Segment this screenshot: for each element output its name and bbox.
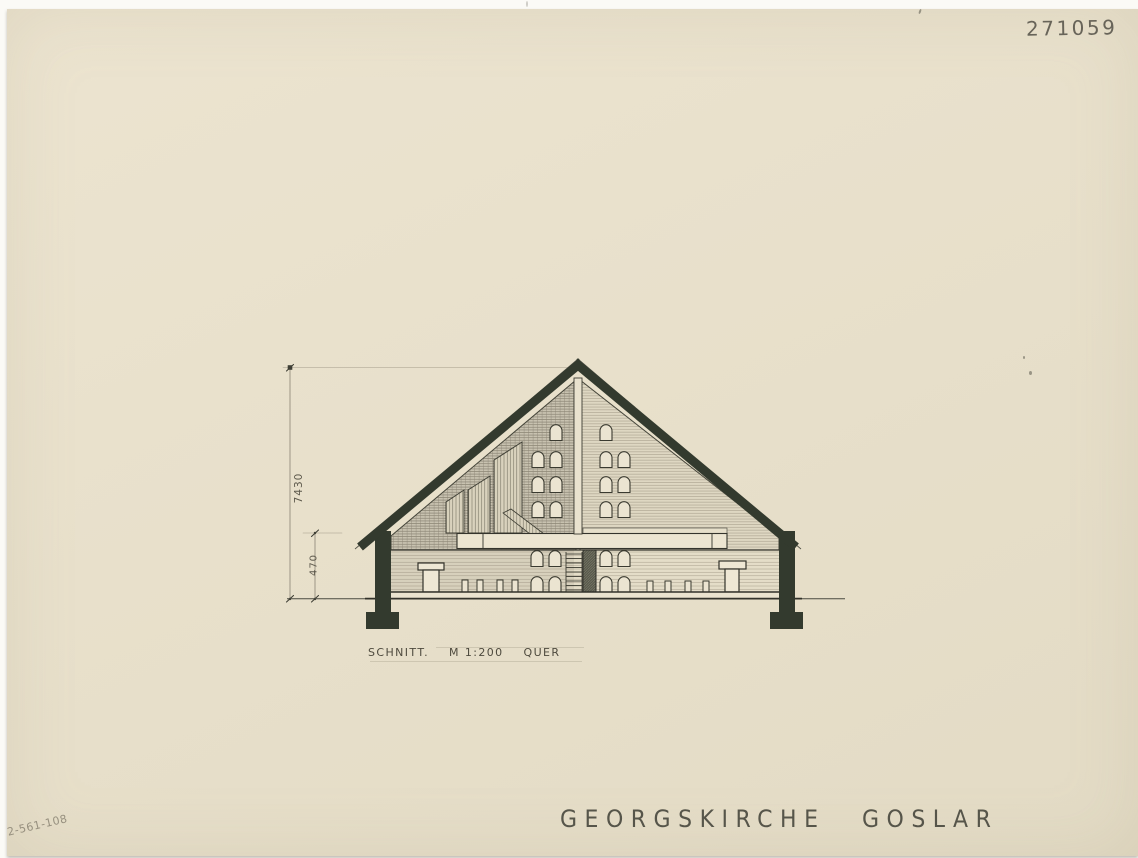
drawing-caption: SCHNITT. M 1:200 QUER [368,646,560,659]
caption-label: SCHNITT. [368,646,429,659]
pencil-guide-line [370,661,582,662]
ground-line [287,592,845,599]
sheet-title: GEORGSKIRCHE GOSLAR [560,806,998,834]
stair-shaft [583,550,596,596]
caption-orientation: QUER [524,646,561,659]
dimension-label-eave-height: 470 [309,554,320,576]
paper-speck [526,1,528,7]
dimension-label-total-height: 7430 [293,473,305,504]
archive-number: 271059 [1026,15,1118,41]
section-drawing: 7430 470 [260,350,980,650]
caption-scale: M 1:200 [449,646,504,659]
section-drawing-svg: 7430 470 [260,350,980,650]
paper-speck [1023,356,1025,359]
paper-speck [1029,371,1032,375]
center-pier [574,378,582,534]
